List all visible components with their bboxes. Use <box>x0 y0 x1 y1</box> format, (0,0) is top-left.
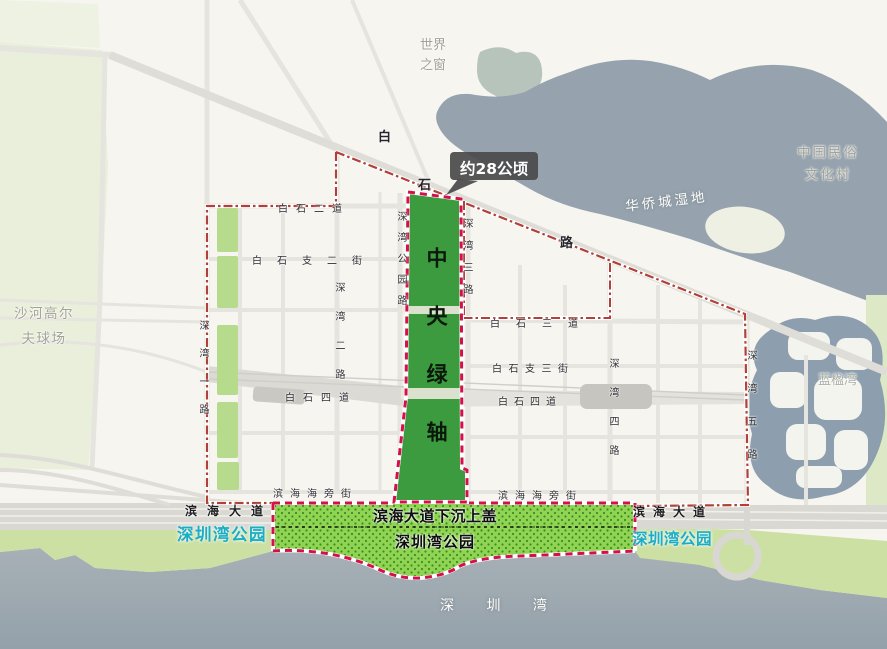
metro-depot-east <box>580 384 652 409</box>
golf-course-area <box>0 42 108 470</box>
axis-road-gap-2 <box>401 388 464 399</box>
green-strips-west <box>217 208 239 490</box>
golf-course-area-top <box>0 0 100 48</box>
map-canvas <box>0 0 887 649</box>
axis-road-gap-1 <box>402 306 464 314</box>
planning-map: 世界之窗 中国民俗文化村 华侨城湿地 沙河高尔夫球场 蓝楹湾 深 圳 湾 白 石… <box>0 0 887 649</box>
